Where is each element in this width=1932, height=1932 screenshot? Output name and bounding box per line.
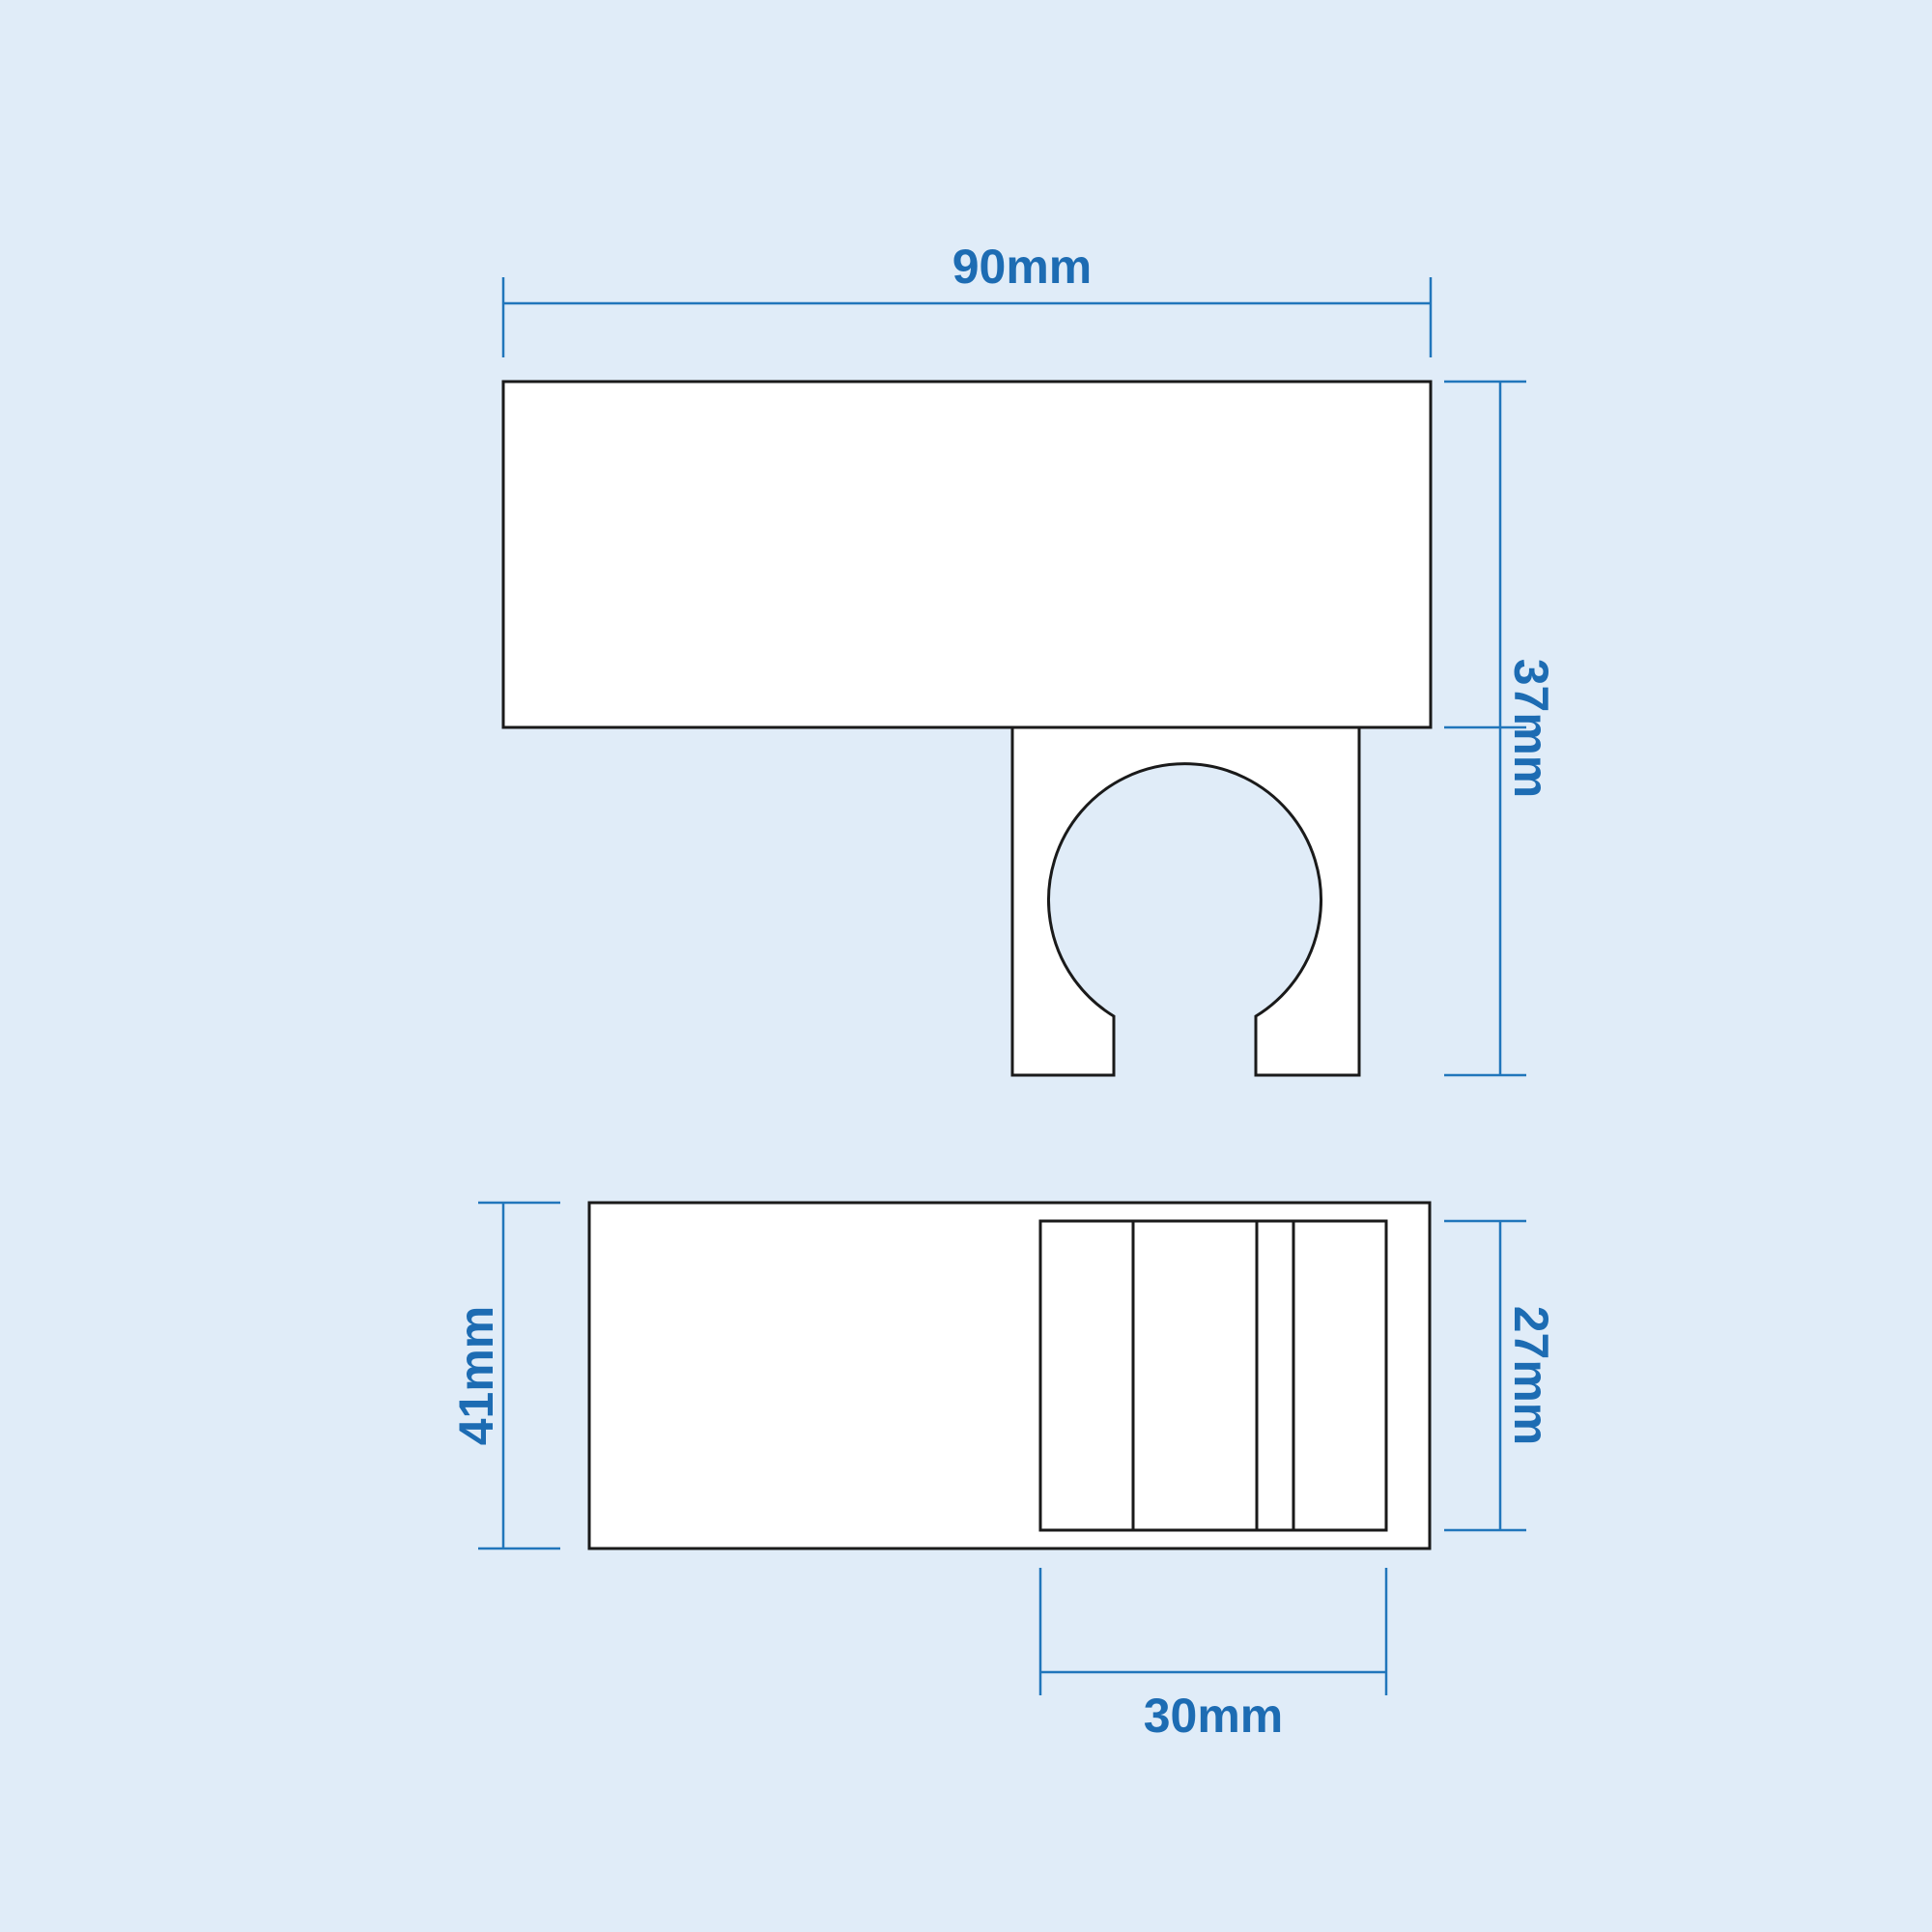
technical-drawing: 90mm 37mm 41mm 27mm 30mm [0,0,1932,1932]
dim-41mm-label: 41mm [449,1306,503,1446]
clip-slot-outline [1040,1221,1386,1530]
bottom-view [589,1203,1430,1548]
dim-90mm-label: 90mm [952,240,1093,294]
dim-27mm-label: 27mm [1504,1306,1558,1446]
dim-37mm-label: 37mm [1504,659,1558,799]
dim-30mm-label: 30mm [1144,1689,1284,1743]
